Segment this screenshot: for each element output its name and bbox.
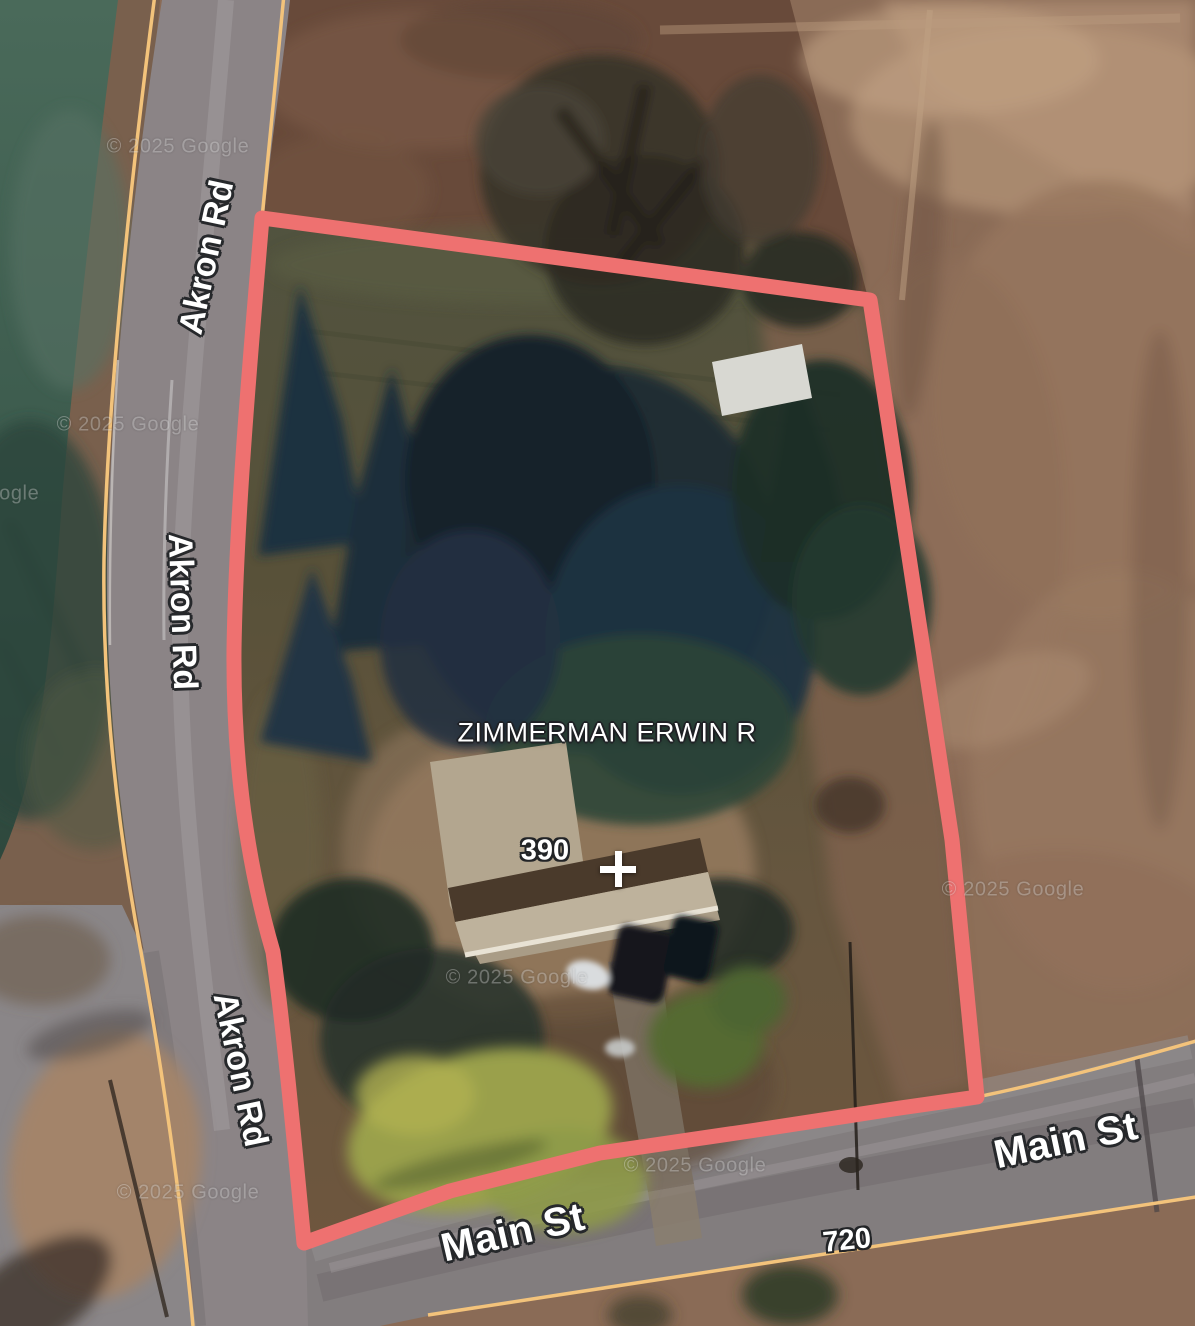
- parcel-address-label: 390: [521, 835, 569, 868]
- map-crosshair: [600, 851, 636, 887]
- google-watermark-7: © 2025 Google: [117, 1182, 260, 1205]
- road-label-akron-rd-middle: Akron Rd: [160, 533, 204, 691]
- satellite-map-view[interactable]: Akron Rd Akron Rd Akron Rd Main St Main …: [0, 0, 1195, 1326]
- crosshair-vertical-bar: [615, 851, 622, 887]
- google-watermark-3: © 2025 Google: [0, 483, 39, 506]
- google-watermark-6: © 2025 Google: [624, 1155, 767, 1178]
- google-watermark-4: © 2025 Google: [942, 879, 1085, 902]
- google-watermark-1: © 2025 Google: [107, 136, 250, 159]
- parcel-owner-label: ZIMMERMAN ERWIN R: [458, 718, 757, 749]
- neighbor-address-label: 720: [821, 1222, 873, 1260]
- google-watermark-5: © 2025 Google: [446, 967, 589, 990]
- google-watermark-2: © 2025 Google: [57, 414, 200, 437]
